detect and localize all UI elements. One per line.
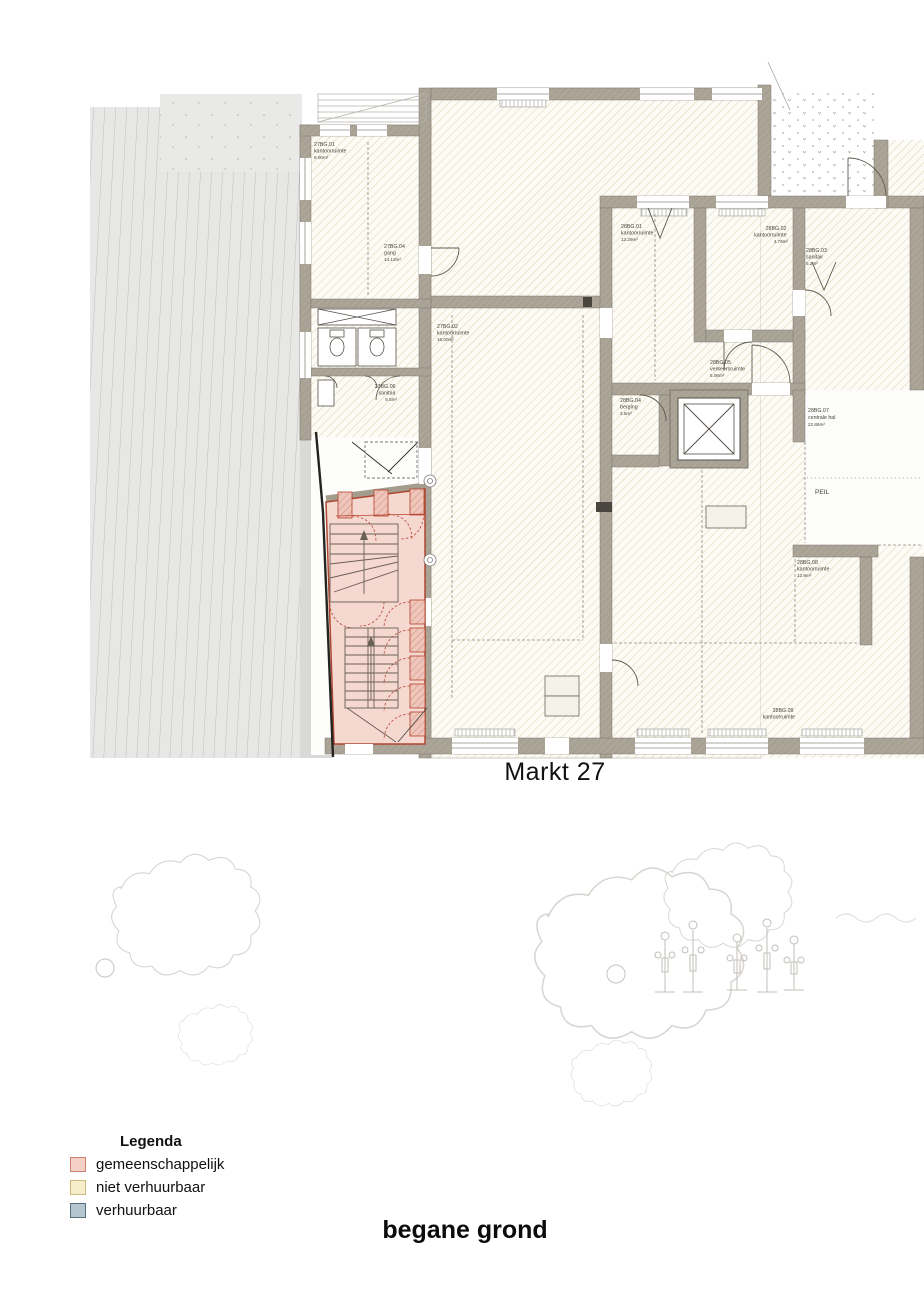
legend-label: gemeenschappelijk (96, 1156, 224, 1173)
common-area-entrance (345, 744, 373, 754)
legend-row-niet-verhuurbaar: niet verhuurbaar (70, 1179, 290, 1196)
common-area (326, 489, 427, 754)
market-square-pavement (90, 94, 333, 758)
manhole-circles (96, 959, 625, 983)
legend-swatch-gemeenschappelijk (70, 1157, 86, 1172)
legend: Legenda gemeenschappelijk niet verhuurba… (70, 1133, 290, 1225)
legend-row-gemeenschappelijk: gemeenschappelijk (70, 1156, 290, 1173)
floor-plan-drawing: 27BG.01 kantoorruimte 9.00m² 27BG.04 gan… (0, 0, 924, 1292)
street-caption: Markt 27 (455, 758, 655, 787)
legend-label: niet verhuurbaar (96, 1179, 205, 1196)
floor-title: begane grond (325, 1216, 605, 1245)
legend-label: verhuurbaar (96, 1202, 177, 1219)
legend-swatch-verhuurbaar (70, 1203, 86, 1218)
legend-row-verhuurbaar: verhuurbaar (70, 1202, 290, 1219)
street-lamps (655, 919, 804, 992)
legend-title: Legenda (120, 1133, 290, 1150)
neighbour-roof-outline (318, 94, 426, 122)
elevator-shaft (670, 390, 748, 468)
drawing-sheet: 27BG.01 kantoorruimte 9.00m² 27BG.04 gan… (0, 0, 924, 1292)
legend-swatch-niet-verhuurbaar (70, 1180, 86, 1195)
